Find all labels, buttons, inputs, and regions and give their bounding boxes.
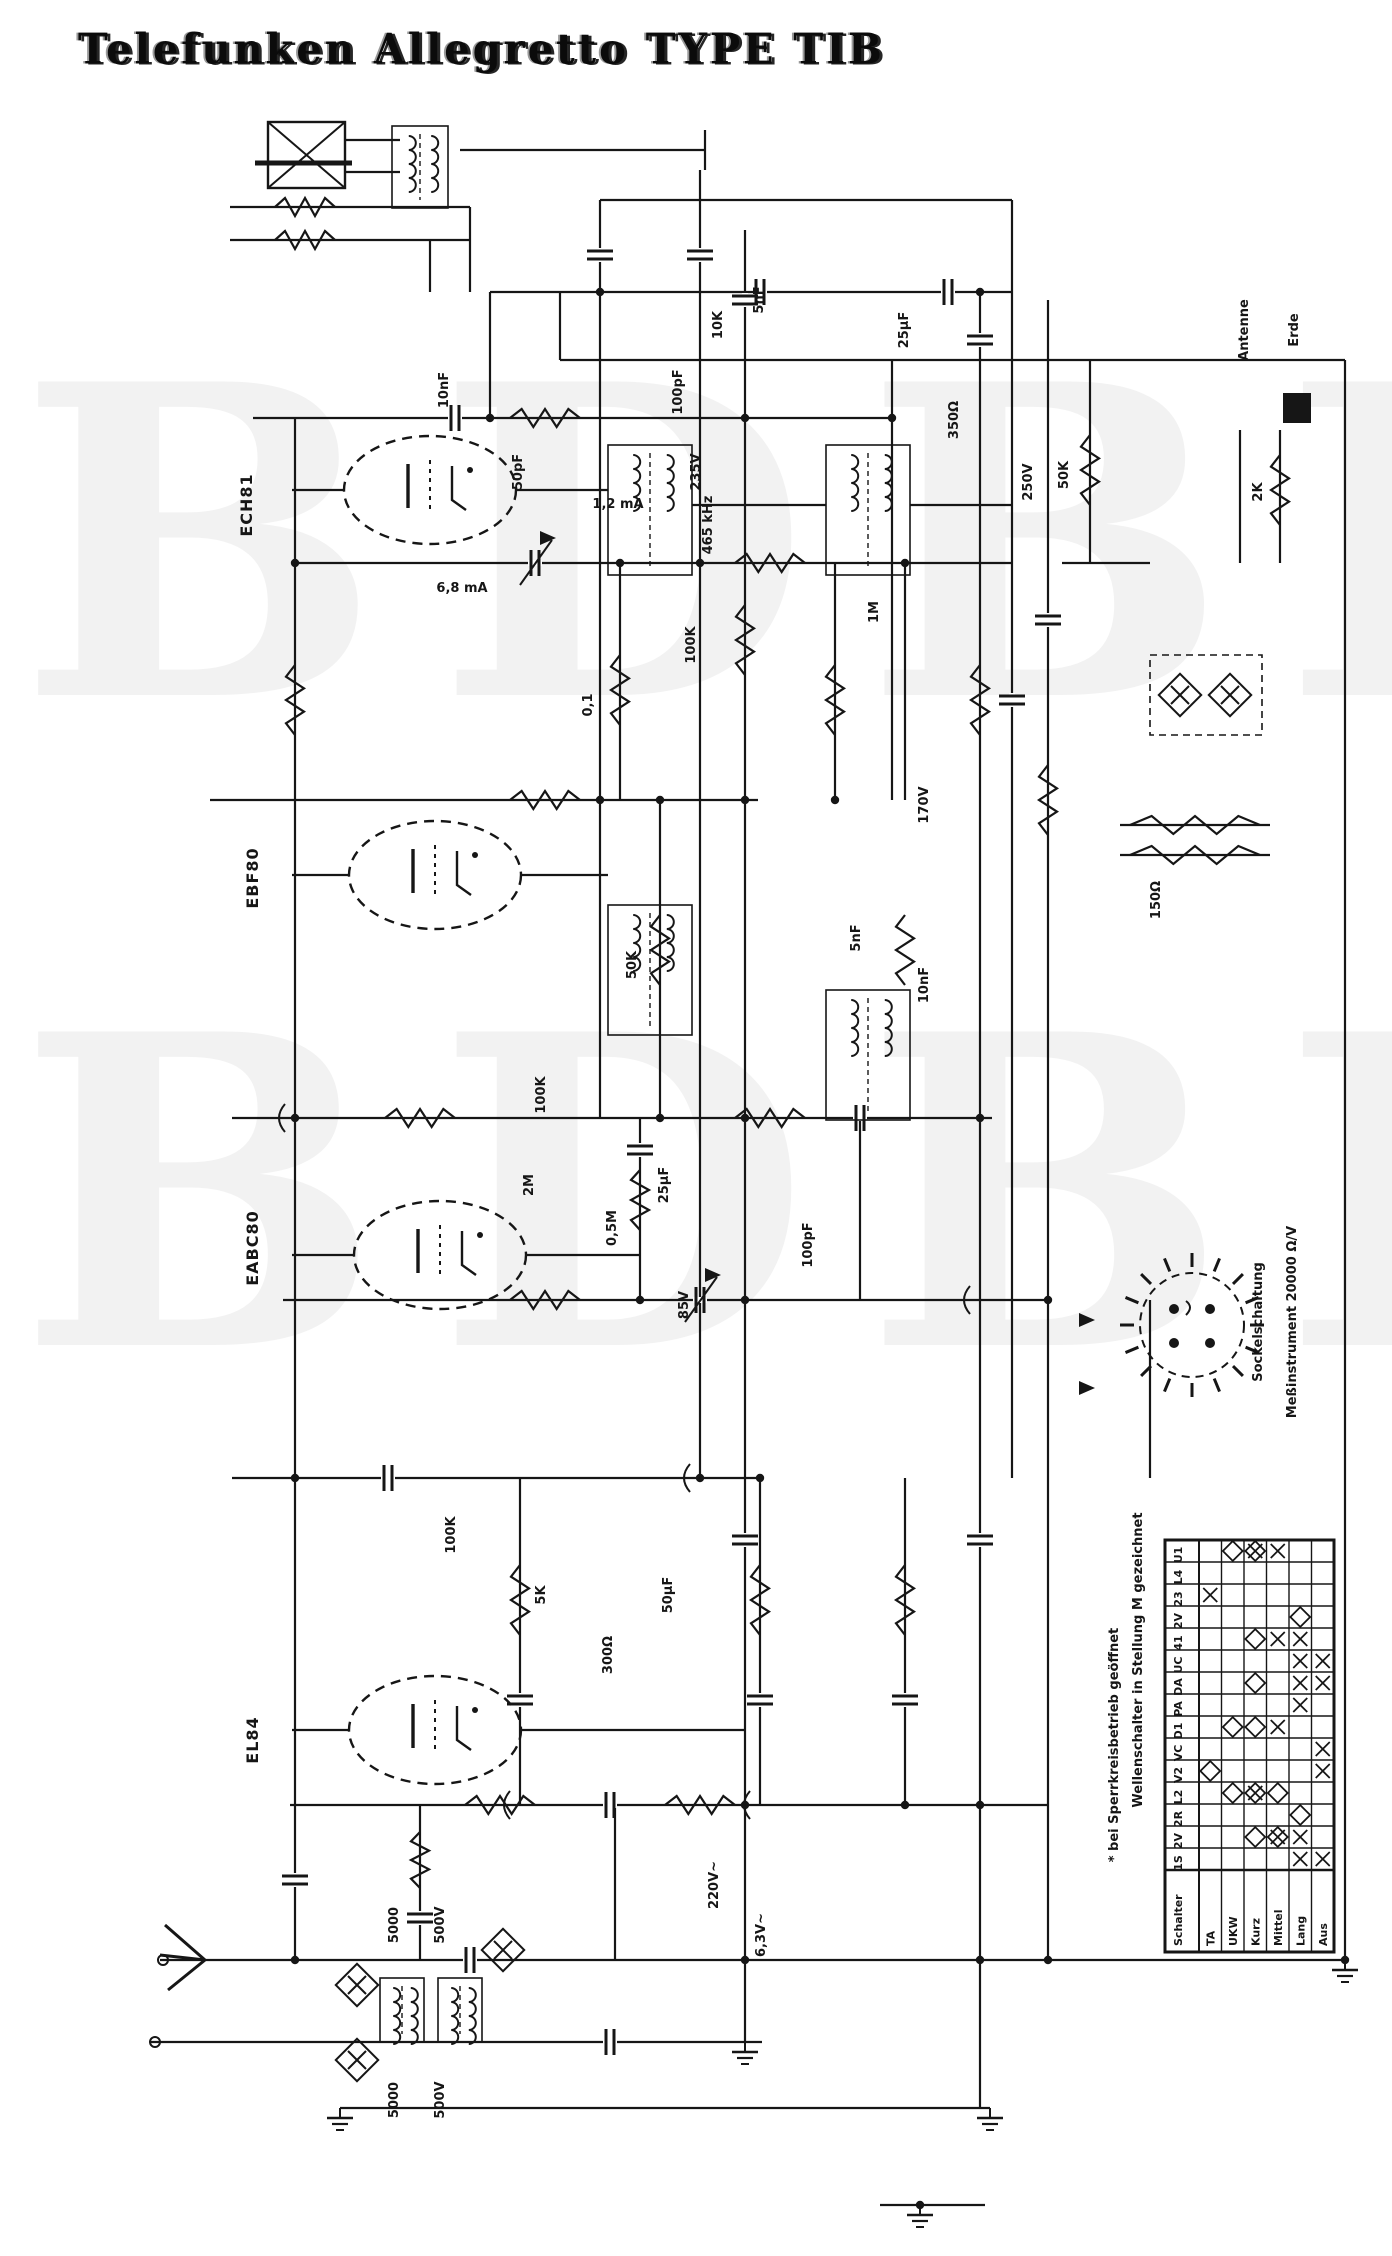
component-label: 1M bbox=[867, 601, 882, 623]
junction-dot bbox=[741, 796, 749, 804]
table-row-label: 1S bbox=[1172, 1855, 1185, 1871]
table-mark-diamond bbox=[1245, 1629, 1265, 1649]
table-mark-diamond bbox=[1223, 1717, 1243, 1737]
filled-square bbox=[1283, 393, 1311, 423]
tube-label-1: ECH81 bbox=[237, 473, 256, 536]
component-label: 235V bbox=[689, 453, 704, 490]
table-row-label: UC bbox=[1172, 1656, 1185, 1673]
coil bbox=[393, 1988, 400, 2044]
junction-dot bbox=[976, 288, 984, 296]
socket-ray bbox=[1214, 1258, 1219, 1271]
table-row-label: L2 bbox=[1172, 1790, 1185, 1805]
component-label: 6,8 mA bbox=[436, 581, 487, 596]
socket-ray bbox=[1141, 1274, 1151, 1284]
socket-ray bbox=[1125, 1347, 1138, 1352]
junction-dot bbox=[656, 1114, 664, 1122]
coil bbox=[667, 455, 674, 511]
switch-table: SchalterTAUKWKurzMittelLangAusU1L4232V41… bbox=[1165, 1540, 1334, 1952]
tube-pin bbox=[472, 852, 478, 858]
table-mark-diamond bbox=[1223, 1783, 1243, 1803]
table-mark-diamond bbox=[1223, 1541, 1243, 1561]
tube-label-4: EL84 bbox=[243, 1716, 262, 1763]
table-mark-diamond bbox=[1290, 1607, 1310, 1627]
table-mark-diamond bbox=[1268, 1783, 1288, 1803]
junction-dot bbox=[596, 796, 604, 804]
junction-dot bbox=[976, 1956, 984, 1964]
arrow-icon bbox=[705, 1268, 721, 1282]
table-row-label: 2V bbox=[1172, 1612, 1185, 1629]
socket-pin bbox=[1169, 1338, 1179, 1348]
component-label: 100K bbox=[684, 625, 699, 663]
component-label: 50K bbox=[1057, 460, 1072, 489]
component-label: 50pF bbox=[511, 454, 526, 490]
component-label: 10nF bbox=[917, 967, 932, 1003]
arrow-icon bbox=[1079, 1313, 1095, 1327]
coil bbox=[885, 455, 892, 511]
junction-dot bbox=[1044, 1296, 1052, 1304]
table-header-col: Schalter bbox=[1172, 1894, 1185, 1946]
junction-dot bbox=[888, 414, 896, 422]
arrow-icon bbox=[540, 531, 556, 545]
component-label: 0,5M bbox=[605, 1210, 620, 1246]
socket-key bbox=[1186, 1301, 1190, 1315]
junction-dot bbox=[741, 1956, 749, 1964]
socket-ray bbox=[1164, 1258, 1169, 1271]
junction-dot bbox=[741, 1801, 749, 1809]
component-label: Antenne bbox=[1237, 299, 1252, 361]
component-label: 100pF bbox=[801, 1222, 816, 1267]
tube-label-3: EABC80 bbox=[243, 1210, 262, 1286]
component-label: 220V~ bbox=[707, 1861, 722, 1909]
junction-dot bbox=[741, 1296, 749, 1304]
component-label: 350Ω bbox=[947, 401, 962, 439]
table-row-label: DA bbox=[1172, 1678, 1185, 1696]
junction-dot bbox=[291, 1474, 299, 1482]
coil bbox=[885, 1000, 892, 1056]
junction-dot bbox=[741, 414, 749, 422]
junction-dot bbox=[901, 1801, 909, 1809]
tube-pin bbox=[467, 467, 473, 473]
coil bbox=[431, 136, 438, 192]
junction-dot bbox=[741, 1114, 749, 1122]
schematic-canvas: ECH81 EBF80 EABC80 EL84 Sockelschaltung … bbox=[0, 0, 1392, 2256]
junction-dot bbox=[696, 559, 704, 567]
table-border bbox=[1165, 1540, 1334, 1952]
component-label: 100K bbox=[534, 1075, 549, 1113]
junction-dot bbox=[636, 1296, 644, 1304]
table-row-label: U1 bbox=[1172, 1547, 1185, 1564]
component-label: 465 kHz bbox=[701, 496, 716, 555]
component-label: 170V bbox=[917, 786, 932, 823]
scanned-schematic-page: BDBB BDBB Telefunken Allegretto TYPE TIB… bbox=[0, 0, 1392, 2256]
component-label: 300Ω bbox=[601, 1636, 616, 1674]
socket-ray bbox=[1164, 1379, 1169, 1392]
tube-cathode bbox=[457, 851, 471, 895]
junction-dot bbox=[976, 1801, 984, 1809]
table-row-label: 2V bbox=[1172, 1832, 1185, 1849]
component-label: 25µF bbox=[897, 312, 912, 349]
junction-dot bbox=[291, 559, 299, 567]
socket-caption: Sockelschaltung bbox=[1251, 1262, 1266, 1382]
table-row-label: 2R bbox=[1172, 1810, 1185, 1827]
table-row-label: PA bbox=[1172, 1701, 1185, 1717]
component-label: 5000 bbox=[387, 2082, 402, 2118]
sockets-box bbox=[1150, 655, 1262, 735]
footnote-switch: Wellenschalter in Stellung M gezeichnet bbox=[1131, 1512, 1146, 1807]
junction-dot bbox=[616, 559, 624, 567]
coil bbox=[469, 1988, 476, 2044]
component-label: 150Ω bbox=[1149, 881, 1164, 919]
table-col-header: Lang bbox=[1294, 1916, 1307, 1946]
junction-dot bbox=[976, 1114, 984, 1122]
arrow-icon bbox=[1079, 1381, 1095, 1395]
junction-dot bbox=[486, 414, 494, 422]
component-label: 25µF bbox=[657, 1167, 672, 1204]
table-mark-diamond bbox=[1245, 1717, 1265, 1737]
component-label: 2K bbox=[1251, 482, 1266, 502]
table-row-label: VC bbox=[1172, 1745, 1185, 1762]
tube-cathode bbox=[462, 1231, 476, 1275]
table-row-label: 41 bbox=[1172, 1635, 1185, 1650]
table-mark-diamond bbox=[1245, 1827, 1265, 1847]
socket-ray bbox=[1233, 1274, 1243, 1284]
coil bbox=[851, 1000, 858, 1056]
socket-pin bbox=[1169, 1304, 1179, 1314]
coil bbox=[851, 455, 858, 511]
table-row-label: D1 bbox=[1172, 1723, 1185, 1740]
table-col-header: Kurz bbox=[1249, 1918, 1262, 1946]
static-symbols: ECH81 EBF80 EABC80 EL84 Sockelschaltung … bbox=[237, 473, 1300, 1862]
socket-circle bbox=[1140, 1273, 1244, 1377]
component-label: 5nF bbox=[752, 286, 767, 313]
table-mark-diamond bbox=[1290, 1805, 1310, 1825]
footnote-star: * bei Sperrkreisbetrieb geöffnet bbox=[1107, 1628, 1122, 1863]
tube-cathode bbox=[452, 466, 466, 510]
component-label: 6,3V~ bbox=[754, 1913, 769, 1957]
table-col-header: UKW bbox=[1227, 1916, 1240, 1946]
junction-dot bbox=[596, 288, 604, 296]
junction-dot bbox=[756, 1474, 764, 1482]
meter-caption: Meßinstrument 20000 Ω/V bbox=[1285, 1226, 1300, 1418]
resistor bbox=[896, 915, 914, 985]
component-label: Erde bbox=[1287, 313, 1302, 347]
junction-dot bbox=[1044, 1956, 1052, 1964]
junction-dot bbox=[831, 796, 839, 804]
component-label: 100K bbox=[444, 1515, 459, 1553]
table-mark-diamond bbox=[1200, 1761, 1220, 1781]
junction-dot bbox=[291, 1956, 299, 1964]
coil bbox=[409, 136, 416, 192]
table-row-label: L4 bbox=[1172, 1569, 1185, 1584]
component-label: 5000 bbox=[387, 1907, 402, 1943]
table-col-header: Aus bbox=[1317, 1923, 1330, 1946]
component-label: 500V bbox=[433, 2081, 448, 2118]
socket-pin bbox=[1205, 1338, 1215, 1348]
coil bbox=[411, 1988, 418, 2044]
table-row-label: V2 bbox=[1172, 1767, 1185, 1783]
component-label: 0,1 bbox=[581, 693, 596, 716]
junction-dot bbox=[916, 2201, 924, 2209]
table-mark-diamond bbox=[1245, 1673, 1265, 1693]
component-label: 500V bbox=[433, 1906, 448, 1943]
socket-pin bbox=[1205, 1304, 1215, 1314]
socket-ray bbox=[1125, 1297, 1138, 1302]
tube-cathode bbox=[457, 1706, 471, 1750]
junction-dot bbox=[656, 796, 664, 804]
table-col-header: Mittel bbox=[1272, 1910, 1285, 1946]
component-label: 100pF bbox=[671, 369, 686, 414]
component-label: 5K bbox=[534, 1585, 549, 1605]
tube-pin bbox=[472, 1707, 478, 1713]
junction-dot bbox=[1341, 1956, 1349, 1964]
component-label: 10K bbox=[711, 310, 726, 339]
junction-dot bbox=[291, 1114, 299, 1122]
component-label: 1,2 mA bbox=[592, 497, 643, 512]
junction-dot bbox=[901, 559, 909, 567]
component-label: 5nF bbox=[849, 924, 864, 951]
socket-ray bbox=[1214, 1379, 1219, 1392]
tube-pin bbox=[477, 1232, 483, 1238]
component-label: 50K bbox=[625, 950, 640, 979]
table-row-label: 23 bbox=[1172, 1591, 1185, 1606]
socket-ray bbox=[1233, 1366, 1243, 1376]
coil bbox=[451, 1988, 458, 2044]
component-label: 85V bbox=[677, 1291, 692, 1319]
component-label: 250V bbox=[1021, 463, 1036, 500]
component-label: 50µF bbox=[661, 1577, 676, 1614]
component-label: 10nF bbox=[437, 372, 452, 408]
tube-label-2: EBF80 bbox=[243, 847, 262, 908]
junction-dot bbox=[696, 1474, 704, 1482]
component-label: 2M bbox=[522, 1174, 537, 1196]
table-col-header: TA bbox=[1204, 1930, 1217, 1946]
